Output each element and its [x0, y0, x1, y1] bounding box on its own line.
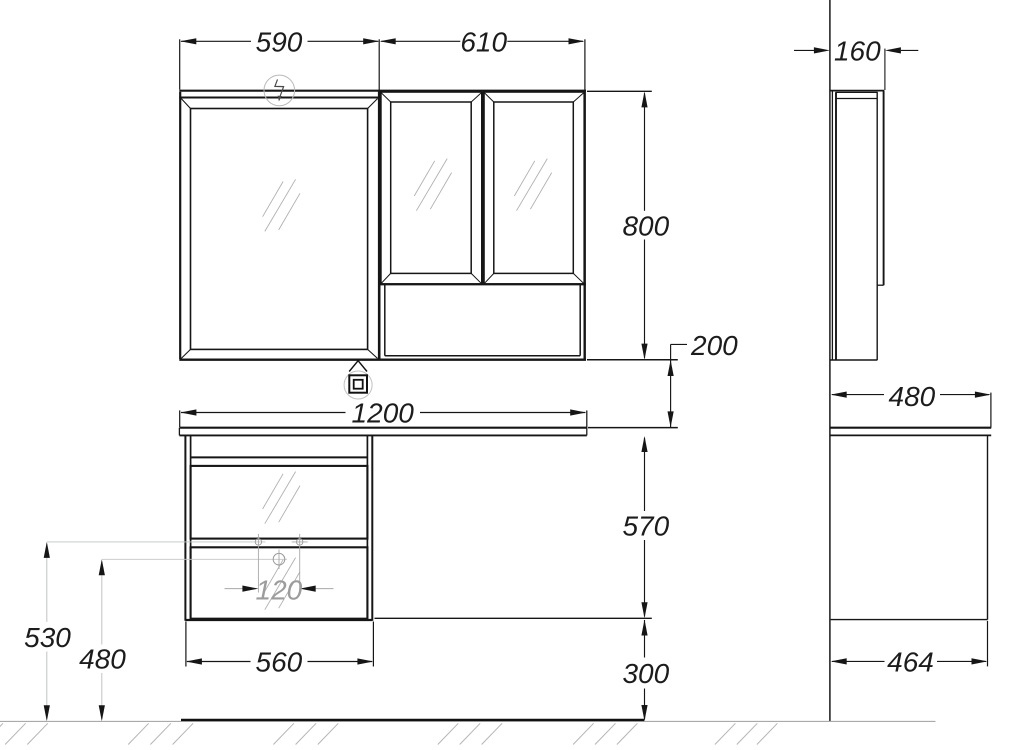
svg-text:570: 570	[622, 511, 669, 542]
svg-text:480: 480	[79, 644, 126, 675]
svg-text:590: 590	[256, 27, 303, 58]
svg-text:800: 800	[622, 210, 669, 241]
svg-text:1200: 1200	[352, 398, 415, 429]
svg-text:120: 120	[256, 575, 303, 606]
svg-text:610: 610	[460, 27, 507, 58]
svg-text:464: 464	[887, 647, 934, 678]
svg-text:300: 300	[622, 658, 669, 689]
svg-text:160: 160	[834, 36, 881, 67]
svg-text:560: 560	[256, 647, 303, 678]
svg-text:200: 200	[690, 330, 738, 361]
svg-text:530: 530	[24, 622, 71, 653]
svg-text:480: 480	[889, 381, 936, 412]
